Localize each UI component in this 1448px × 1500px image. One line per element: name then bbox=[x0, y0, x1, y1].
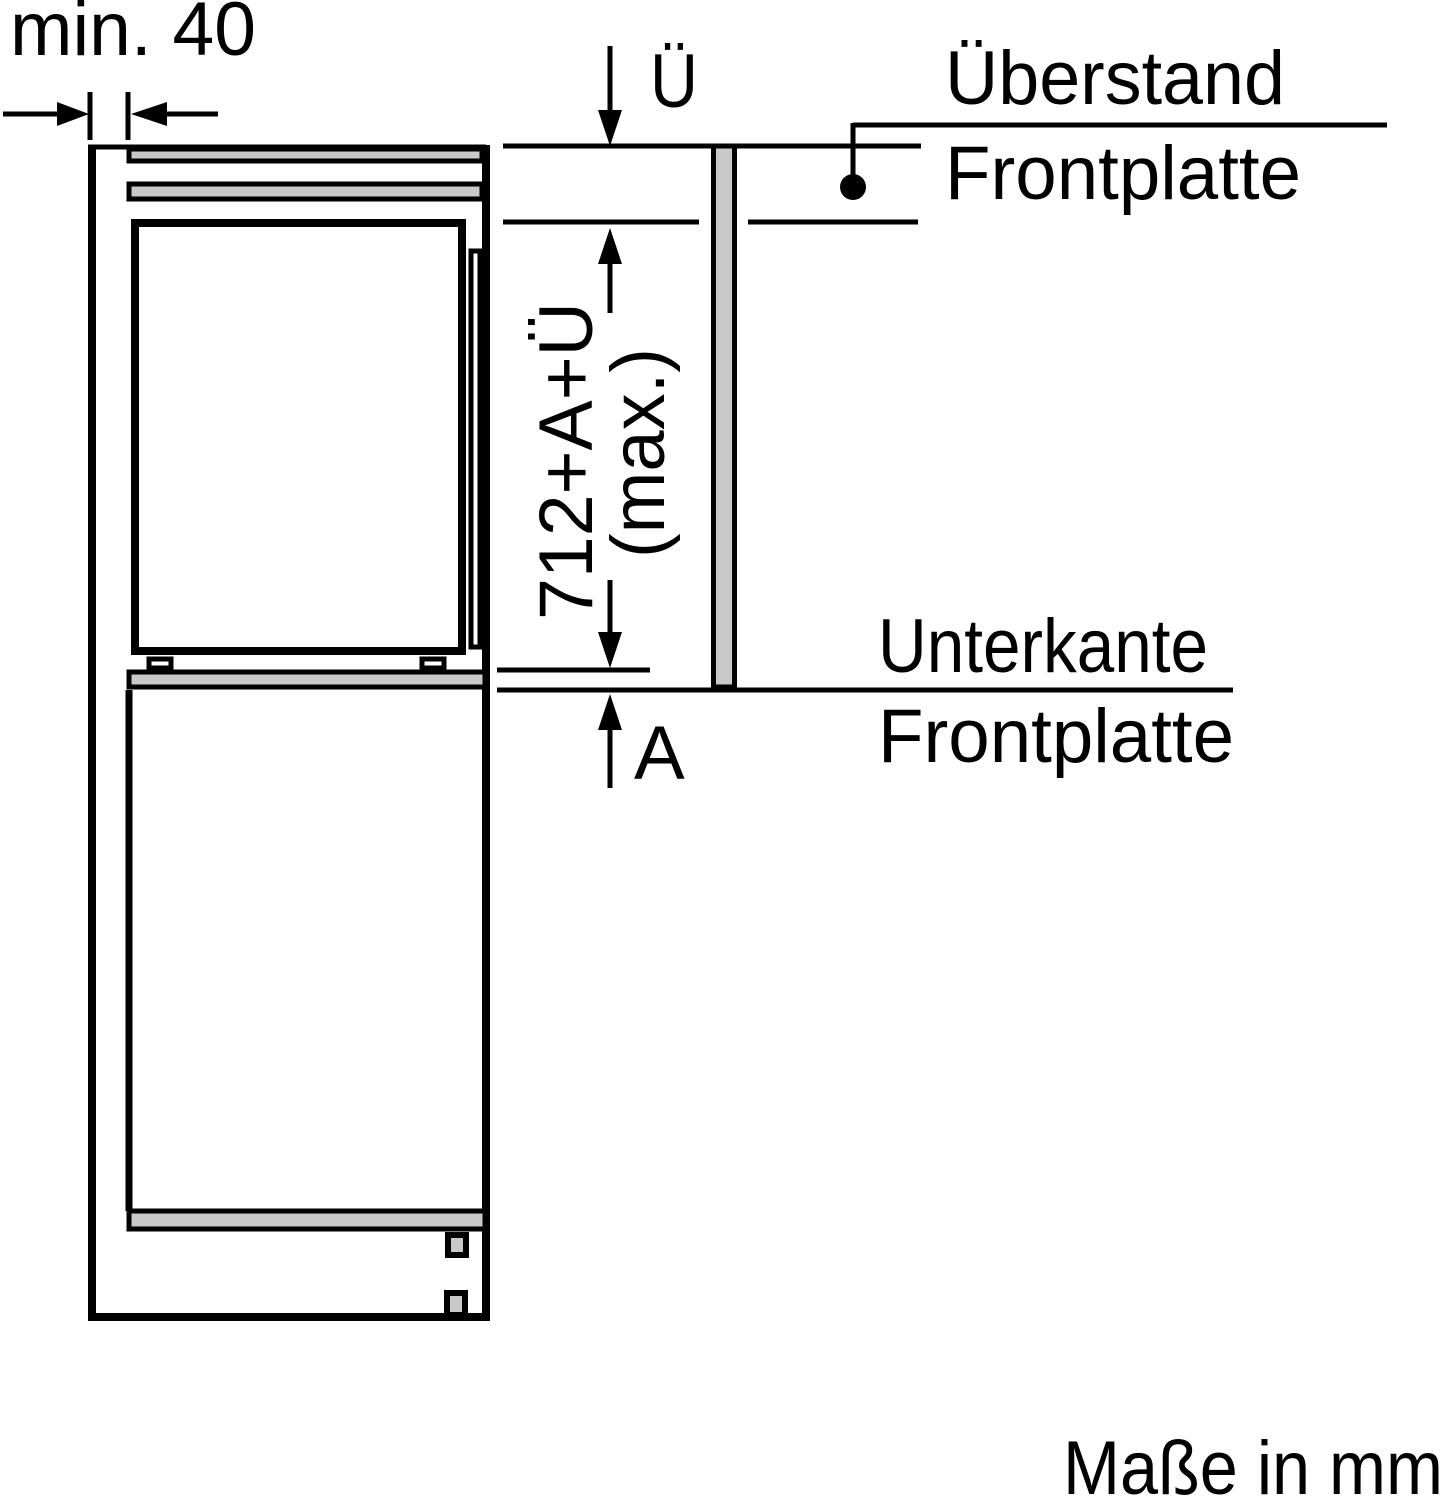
leader-dot bbox=[840, 174, 866, 200]
plinth-block-lower bbox=[447, 1293, 465, 1315]
appliance-door bbox=[135, 223, 462, 651]
label-bottom-edge-line2: Frontplatte bbox=[878, 694, 1234, 779]
door-foot-left bbox=[149, 659, 171, 668]
top-panel-bar-upper bbox=[129, 149, 482, 161]
label-bottom-edge-line1: Unterkante bbox=[878, 604, 1208, 689]
front-panel-bar bbox=[714, 146, 735, 687]
label-overhang-name-line2: Frontplatte bbox=[945, 131, 1301, 216]
min40-arrow-right bbox=[131, 102, 218, 126]
label-overhang-name-line1: Überstand bbox=[945, 36, 1285, 121]
label-units-note: Maße in mm bbox=[1063, 1426, 1443, 1500]
installation-drawing: min. 40 Ü Überstand Frontplatte 712+A+Ü … bbox=[0, 0, 1448, 1500]
plinth-shelf-bar bbox=[129, 1211, 485, 1229]
label-min-gap: min. 40 bbox=[10, 0, 256, 72]
diagram-canvas: min. 40 Ü Überstand Frontplatte 712+A+Ü … bbox=[0, 0, 1448, 1500]
lower-trim-bar bbox=[129, 672, 485, 687]
label-height-max: (max.) bbox=[596, 348, 681, 558]
min40-arrow-left bbox=[3, 102, 89, 126]
door-front-strip bbox=[471, 251, 480, 647]
top-panel-bar-lower bbox=[129, 184, 482, 199]
height-dim-arrow-up bbox=[598, 228, 622, 313]
door-foot-right bbox=[422, 659, 444, 668]
plinth-block-upper bbox=[448, 1235, 466, 1255]
label-gap-symbol: A bbox=[634, 711, 685, 796]
label-overhang-symbol: Ü bbox=[650, 39, 698, 124]
a-dim-arrow-up bbox=[598, 694, 622, 788]
overhang-dim-arrow-down bbox=[598, 46, 622, 146]
